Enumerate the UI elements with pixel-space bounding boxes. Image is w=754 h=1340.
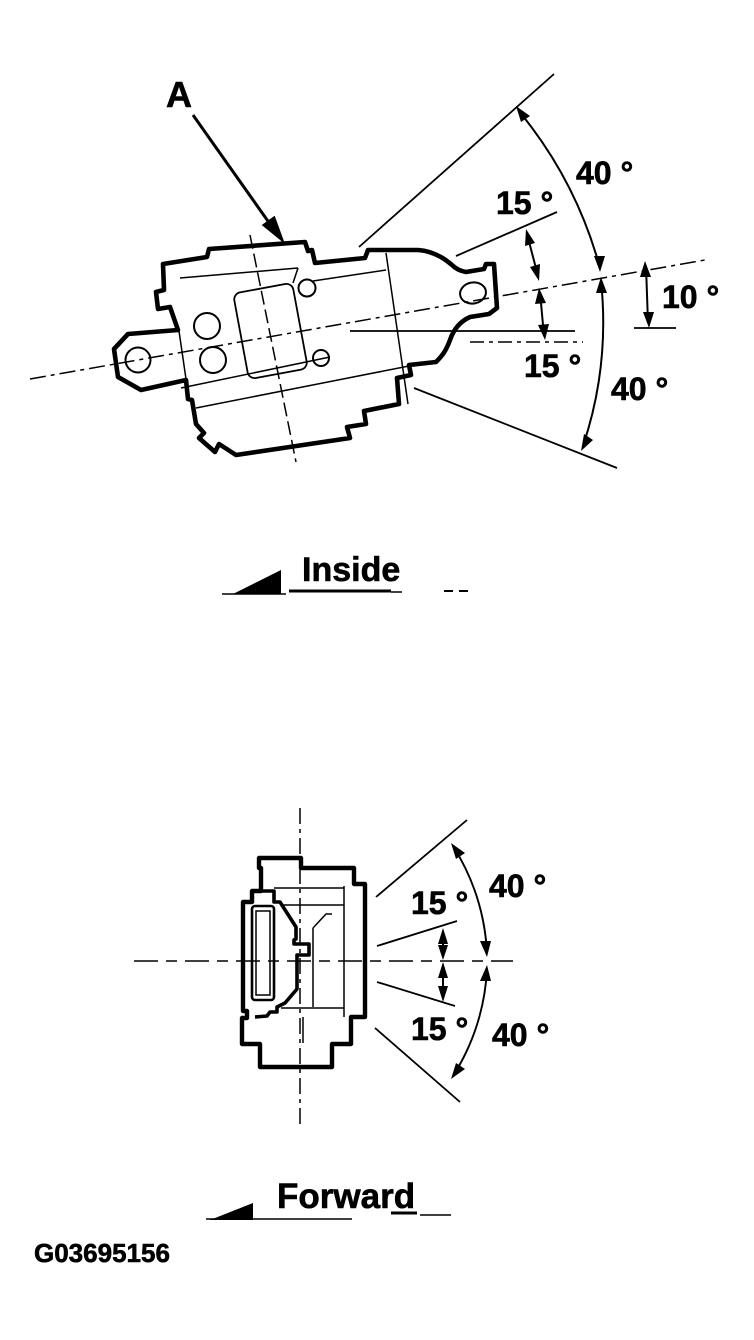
svg-text:15 °: 15 ° — [496, 185, 553, 221]
svg-text:A: A — [166, 74, 192, 115]
svg-text:Forward: Forward — [277, 1177, 415, 1216]
svg-text:15 °: 15 ° — [524, 348, 581, 384]
svg-text:40 °: 40 ° — [611, 371, 668, 407]
svg-text:40 °: 40 ° — [576, 155, 633, 191]
svg-text:G03695156: G03695156 — [34, 1238, 170, 1268]
svg-text:40 °: 40 ° — [489, 868, 546, 904]
svg-text:15 °: 15 ° — [411, 885, 468, 921]
svg-text:15 °: 15 ° — [411, 1011, 468, 1047]
svg-text:Inside: Inside — [302, 551, 400, 589]
svg-text:40 °: 40 ° — [492, 1017, 549, 1053]
svg-text:10 °: 10 ° — [662, 279, 719, 315]
